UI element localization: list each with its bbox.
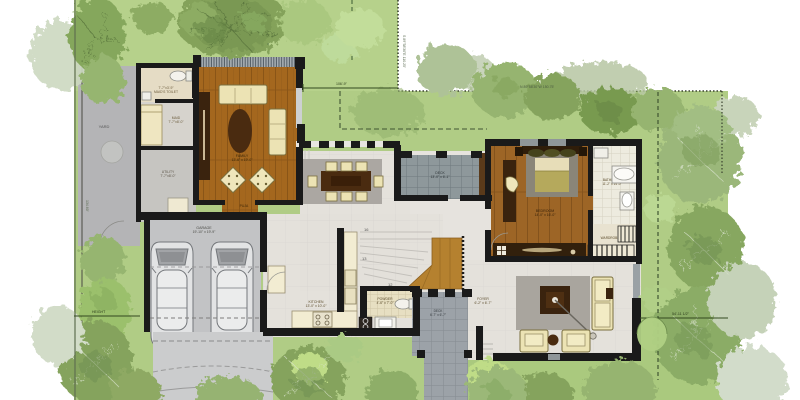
svg-text:MAID'S TOILET: MAID'S TOILET	[154, 90, 178, 94]
svg-text:S 89°58'30"E 110.25': S 89°58'30"E 110.25'	[402, 35, 406, 68]
svg-text:HEIGHT: HEIGHT	[92, 310, 106, 314]
svg-text:4'-6" x 7'-0": 4'-6" x 7'-0"	[376, 301, 394, 305]
svg-text:13'-0" x 6'-1": 13'-0" x 6'-1"	[431, 175, 451, 179]
svg-text:PUJA: PUJA	[240, 204, 249, 208]
svg-text:106'-9": 106'-9"	[336, 82, 348, 86]
svg-text:7'-7"x8'-0": 7'-7"x8'-0"	[160, 174, 176, 178]
svg-text:19'-10" x 19'-9": 19'-10" x 19'-9"	[193, 230, 217, 234]
svg-text:16: 16	[364, 227, 369, 232]
svg-text:WARDROBE: WARDROBE	[601, 236, 620, 240]
svg-text:54'-11 1/2": 54'-11 1/2"	[672, 312, 690, 316]
svg-text:6'-2" x 6'-7": 6'-2" x 6'-7"	[474, 301, 492, 305]
svg-text:13'-0" x 10'-0": 13'-0" x 10'-0"	[306, 304, 328, 308]
svg-text:134.60': 134.60'	[85, 200, 89, 212]
svg-text:14'-0" x 16'-0": 14'-0" x 16'-0"	[535, 213, 557, 217]
svg-text:N 89°58'30"W 150.75': N 89°58'30"W 150.75'	[520, 85, 554, 89]
svg-text:7'-7"x8'-0": 7'-7"x8'-0"	[168, 120, 184, 124]
svg-text:13'-6" x 19'-0": 13'-6" x 19'-0"	[232, 158, 254, 162]
svg-text:YARD: YARD	[99, 124, 110, 129]
svg-text:6'-7" x 6'-7": 6'-7" x 6'-7"	[430, 313, 446, 317]
svg-text:13: 13	[362, 256, 367, 261]
